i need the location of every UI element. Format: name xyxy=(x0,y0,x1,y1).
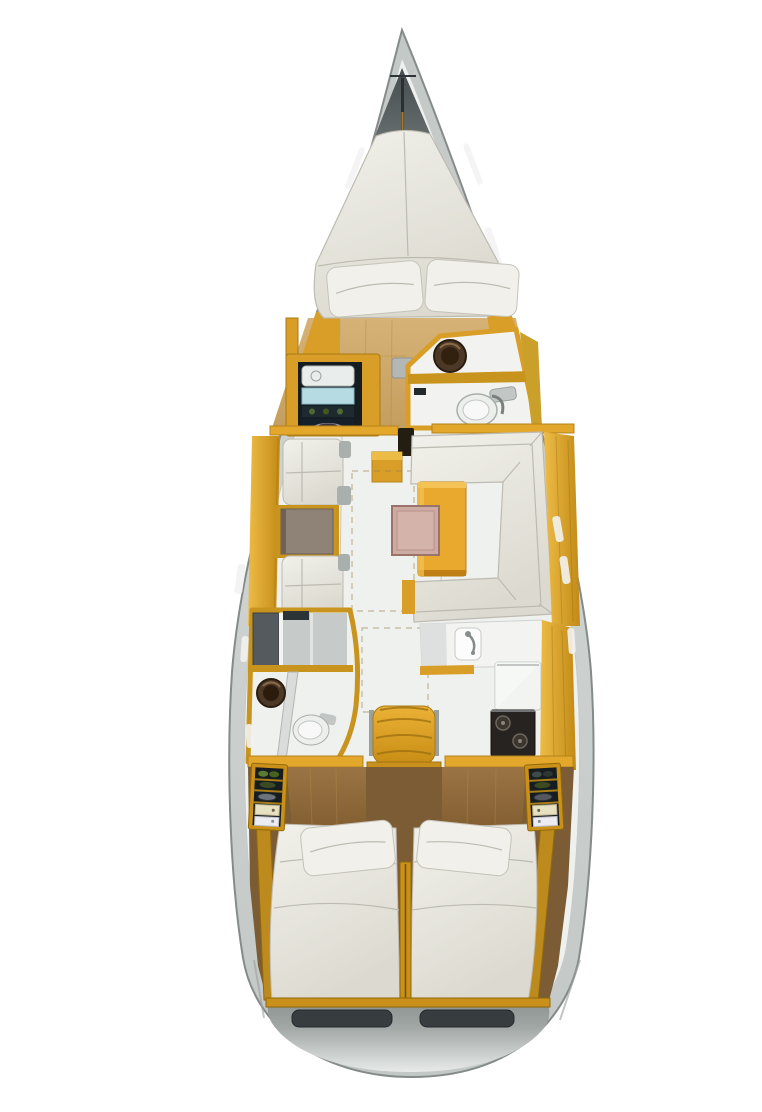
port-cabin-entry-floor xyxy=(286,767,366,826)
floor-plan-svg xyxy=(40,16,762,1096)
starboard-shelf-unit xyxy=(524,763,563,831)
counter-shaded xyxy=(420,623,447,668)
wardrobe-shelf-items xyxy=(302,366,354,435)
bulkhead-port xyxy=(270,426,398,435)
galley-fridge xyxy=(495,662,541,710)
settee-end-cabinet xyxy=(402,580,415,614)
bulkhead-starboard xyxy=(432,424,574,433)
starboard-berth xyxy=(410,819,537,1002)
aft-cabins xyxy=(248,763,574,1004)
counter-trim xyxy=(420,665,474,675)
salon-cabinet-top xyxy=(372,452,402,460)
shower-divider xyxy=(251,665,353,672)
aft-head-sink xyxy=(257,679,285,707)
v-berth-pillow-port xyxy=(326,260,424,318)
starboard-cabin-entry-floor xyxy=(442,767,526,826)
port-shelf-unit xyxy=(248,763,287,831)
port-chart-table xyxy=(275,505,339,558)
galley-sink xyxy=(455,628,481,660)
v-berth-pillow-starboard xyxy=(424,259,519,317)
forward-head xyxy=(408,329,542,428)
head-accessory xyxy=(414,388,426,395)
sailboat-floor-plan xyxy=(40,16,762,1096)
port-settee-forward-seat xyxy=(283,439,343,505)
stern-locker-starboard xyxy=(420,1010,514,1027)
companionway-steps xyxy=(373,706,435,764)
shower-stall xyxy=(253,611,347,667)
stern-beam xyxy=(266,998,550,1007)
port-berth xyxy=(270,819,400,1002)
port-settee-aft-seat xyxy=(282,556,343,614)
forward-head-sink xyxy=(434,340,466,372)
aft-head xyxy=(248,610,358,762)
stern-locker-port xyxy=(292,1010,392,1027)
table-pink-leaf xyxy=(392,506,439,555)
galley-stove xyxy=(491,710,535,756)
